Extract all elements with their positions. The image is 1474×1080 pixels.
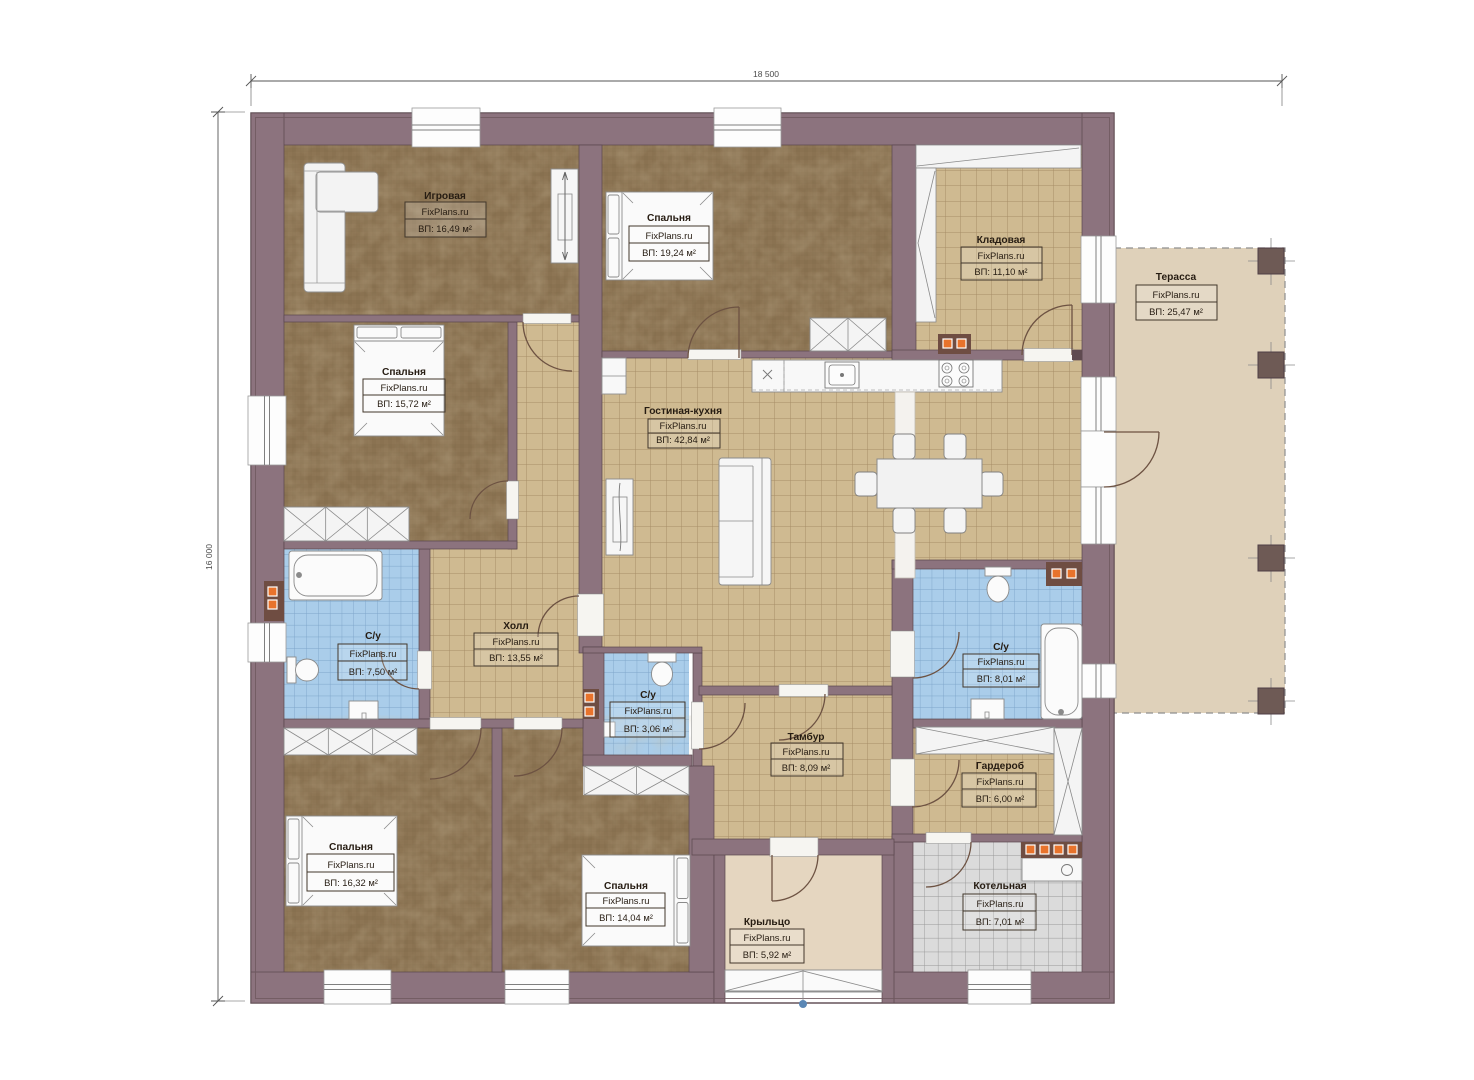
svg-text:ВП: 7,50 м²: ВП: 7,50 м²	[349, 666, 398, 677]
svg-text:ВП: 6,00 м²: ВП: 6,00 м²	[976, 793, 1025, 804]
svg-text:ВП: 42,84 м²: ВП: 42,84 м²	[656, 434, 710, 445]
svg-text:Котельная: Котельная	[973, 881, 1026, 892]
svg-text:ВП: 19,24 м²: ВП: 19,24 м²	[642, 247, 696, 258]
svg-text:18 500: 18 500	[753, 69, 779, 79]
svg-text:Спальня: Спальня	[604, 881, 648, 892]
svg-text:Кладовая: Кладовая	[977, 235, 1026, 246]
svg-text:ВП: 7,01 м²: ВП: 7,01 м²	[976, 916, 1025, 927]
svg-text:ВП: 11,10 м²: ВП: 11,10 м²	[974, 266, 1027, 277]
svg-text:FixPlans.ru: FixPlans.ru	[422, 206, 469, 217]
svg-text:Тамбур: Тамбур	[788, 731, 825, 743]
svg-text:ВП: 8,09 м²: ВП: 8,09 м²	[782, 762, 831, 773]
svg-text:FixPlans.ru: FixPlans.ru	[977, 776, 1024, 787]
svg-text:FixPlans.ru: FixPlans.ru	[660, 420, 707, 431]
svg-text:FixPlans.ru: FixPlans.ru	[978, 250, 1025, 261]
svg-text:FixPlans.ru: FixPlans.ru	[350, 648, 397, 659]
svg-text:Гостиная-кухня: Гостиная-кухня	[644, 406, 722, 417]
svg-text:Игровая: Игровая	[424, 191, 466, 202]
svg-text:FixPlans.ru: FixPlans.ru	[381, 382, 428, 393]
svg-text:ВП: 5,92 м²: ВП: 5,92 м²	[743, 949, 792, 960]
svg-text:FixPlans.ru: FixPlans.ru	[1153, 289, 1200, 300]
svg-text:FixPlans.ru: FixPlans.ru	[783, 746, 830, 757]
svg-text:FixPlans.ru: FixPlans.ru	[978, 656, 1025, 667]
svg-text:Терасса: Терасса	[1156, 272, 1197, 283]
svg-text:Спальня: Спальня	[647, 213, 691, 224]
svg-text:FixPlans.ru: FixPlans.ru	[493, 636, 540, 647]
svg-text:ВП: 15,72 м²: ВП: 15,72 м²	[377, 398, 431, 409]
svg-text:ВП: 3,06 м²: ВП: 3,06 м²	[624, 723, 673, 734]
svg-text:ВП: 8,01 м²: ВП: 8,01 м²	[977, 673, 1026, 684]
svg-text:Спальня: Спальня	[382, 367, 426, 378]
svg-text:ВП: 13,55 м²: ВП: 13,55 м²	[489, 652, 543, 663]
svg-text:С/у: С/у	[640, 690, 656, 701]
svg-text:ВП: 16,49 м²: ВП: 16,49 м²	[418, 223, 472, 234]
svg-text:FixPlans.ru: FixPlans.ru	[646, 230, 693, 241]
svg-text:FixPlans.ru: FixPlans.ru	[603, 895, 650, 906]
svg-text:Гардероб: Гардероб	[976, 760, 1024, 772]
svg-text:Крыльцо: Крыльцо	[744, 917, 790, 928]
svg-text:ВП: 25,47 м²: ВП: 25,47 м²	[1149, 306, 1203, 317]
svg-text:С/у: С/у	[993, 642, 1009, 653]
svg-text:С/у: С/у	[365, 631, 381, 642]
svg-text:FixPlans.ru: FixPlans.ru	[744, 932, 791, 943]
svg-text:FixPlans.ru: FixPlans.ru	[328, 859, 375, 870]
svg-text:ВП: 14,04 м²: ВП: 14,04 м²	[599, 912, 653, 923]
svg-text:FixPlans.ru: FixPlans.ru	[625, 705, 672, 716]
svg-text:Спальня: Спальня	[329, 842, 373, 853]
svg-text:FixPlans.ru: FixPlans.ru	[977, 898, 1024, 909]
svg-text:ВП: 16,32 м²: ВП: 16,32 м²	[324, 877, 378, 888]
svg-text:16 000: 16 000	[204, 544, 214, 570]
svg-text:Холл: Холл	[503, 621, 529, 632]
